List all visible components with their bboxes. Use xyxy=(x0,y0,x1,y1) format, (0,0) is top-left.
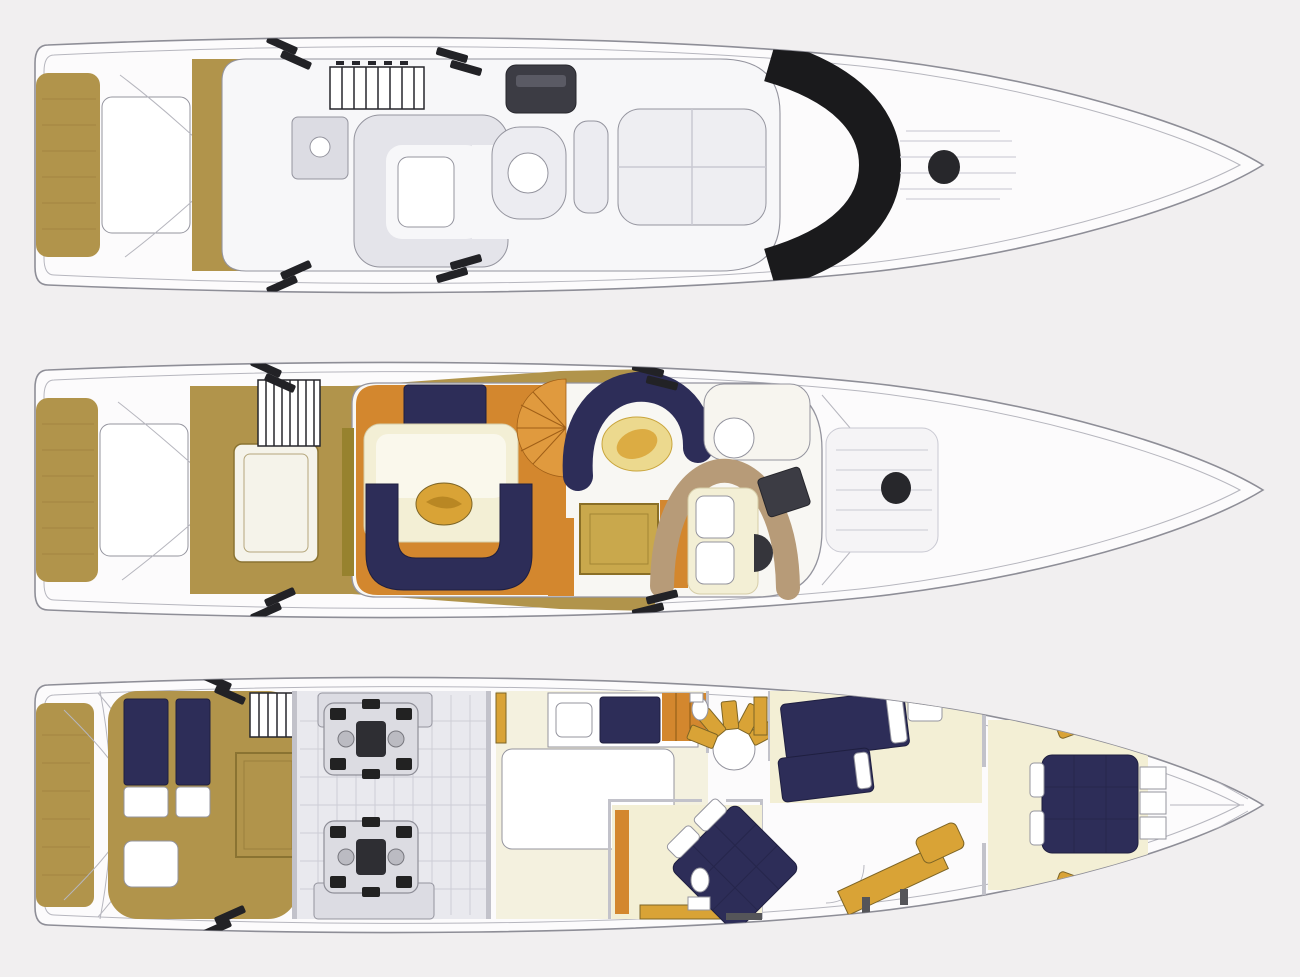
cocktail-table xyxy=(398,157,454,227)
crew-table xyxy=(124,841,178,887)
engine-room-hatch xyxy=(234,444,318,562)
flybridge-grill xyxy=(330,63,424,109)
transom-stair-hatch xyxy=(100,424,188,556)
door-sill-1 xyxy=(726,913,762,920)
engine-starboard xyxy=(324,817,418,897)
companion-cushion-2 xyxy=(696,542,734,584)
guest-cabinet-strip xyxy=(496,693,506,743)
aft-sideboard xyxy=(342,428,354,576)
flybridge-deck xyxy=(35,35,1263,295)
vip-double-berth xyxy=(1030,755,1138,853)
vip-steps xyxy=(1140,767,1166,839)
engine-port xyxy=(324,699,418,779)
vanity-leg-1 xyxy=(862,897,870,913)
guest-bed-blanket xyxy=(600,697,660,743)
lower-deck-interior xyxy=(36,671,1248,939)
companion-cushion-1 xyxy=(696,496,734,538)
nightstand xyxy=(908,697,942,721)
transom-stair-hatch xyxy=(102,97,190,233)
flybridge-helm-console xyxy=(506,65,576,113)
swim-platform xyxy=(36,703,94,907)
foredeck-hatch xyxy=(928,150,960,184)
helm-seat-cushion xyxy=(508,153,548,193)
crew-bunk-1-foot xyxy=(124,787,168,817)
foredeck-hatch xyxy=(881,472,911,504)
crew-bunk-2 xyxy=(176,699,210,785)
crew-bunk-1 xyxy=(124,699,168,785)
vip-cabinet-top xyxy=(1050,695,1105,740)
main-deck xyxy=(35,358,1263,622)
vip-cabinet-bottom xyxy=(1050,871,1105,916)
master-aft-wall xyxy=(608,799,611,919)
engine-room-aft-bulkhead xyxy=(292,691,297,919)
yacht-deck-plan-page xyxy=(0,0,1300,977)
salon-forward-bench xyxy=(404,385,486,429)
master-wardrobe-port xyxy=(615,810,629,914)
master-fwd-wall-1 xyxy=(608,799,702,802)
vanity-leg-2 xyxy=(900,889,908,905)
door-sill-2 xyxy=(880,911,910,918)
deck-plan-svg xyxy=(0,0,1300,977)
flybridge-sun-pad xyxy=(618,109,766,225)
companion-bench xyxy=(574,121,608,213)
instrument-panel xyxy=(516,75,566,87)
salon-cabinet xyxy=(548,518,574,596)
vip-wall-bottom xyxy=(982,843,986,915)
helm-seat-cushion xyxy=(714,418,754,458)
engine-room-fwd-bulkhead xyxy=(486,691,491,919)
bar-sink xyxy=(310,137,330,157)
vip-wall-top xyxy=(982,695,986,767)
crew-bunk-2-foot xyxy=(176,787,210,817)
master-fwd-wall-2 xyxy=(726,799,762,802)
lower-deck xyxy=(35,671,1263,939)
guest-bed-pillow xyxy=(556,703,592,737)
